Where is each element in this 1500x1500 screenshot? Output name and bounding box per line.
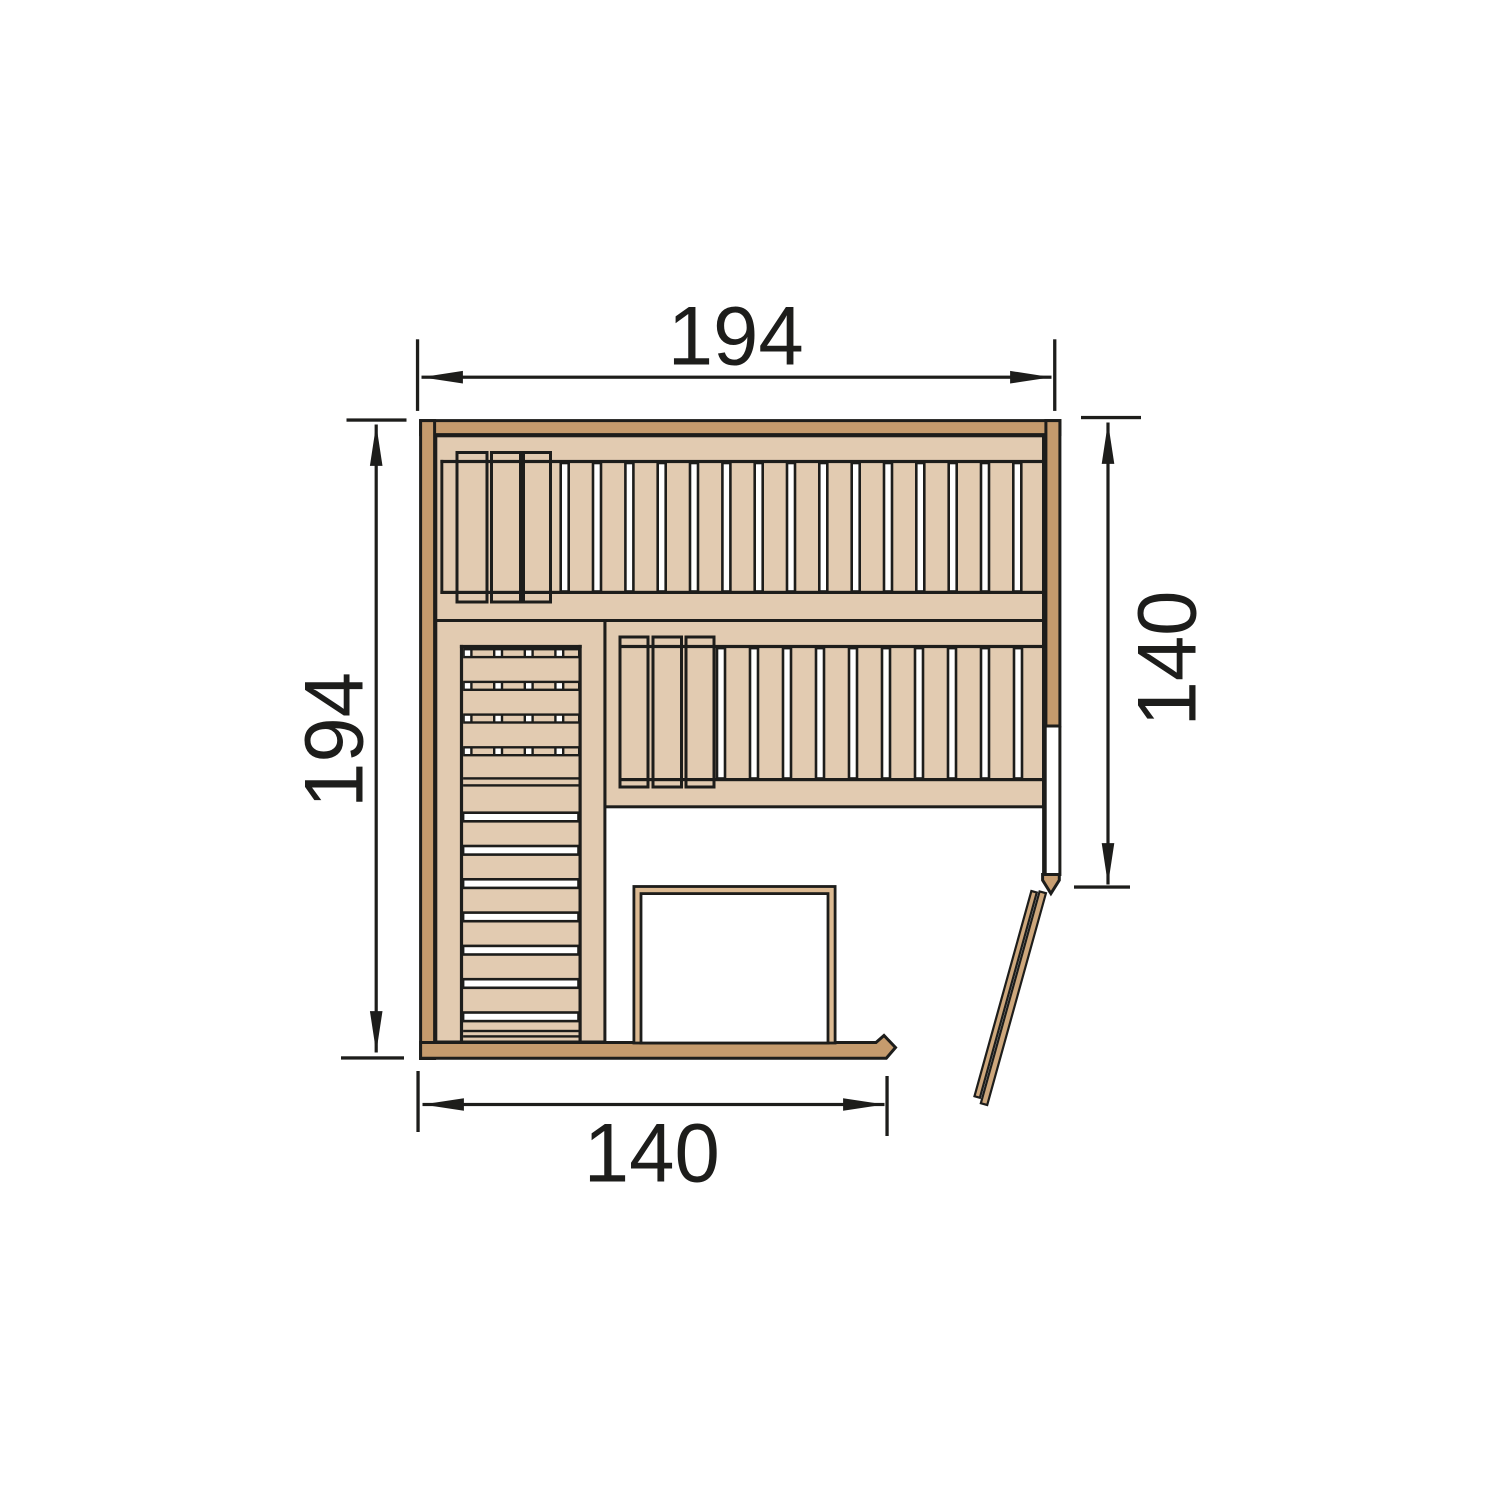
svg-text:140: 140 [584, 1105, 720, 1199]
svg-text:194: 194 [287, 672, 381, 808]
svg-text:194: 194 [668, 288, 804, 382]
svg-text:140: 140 [1119, 591, 1213, 727]
